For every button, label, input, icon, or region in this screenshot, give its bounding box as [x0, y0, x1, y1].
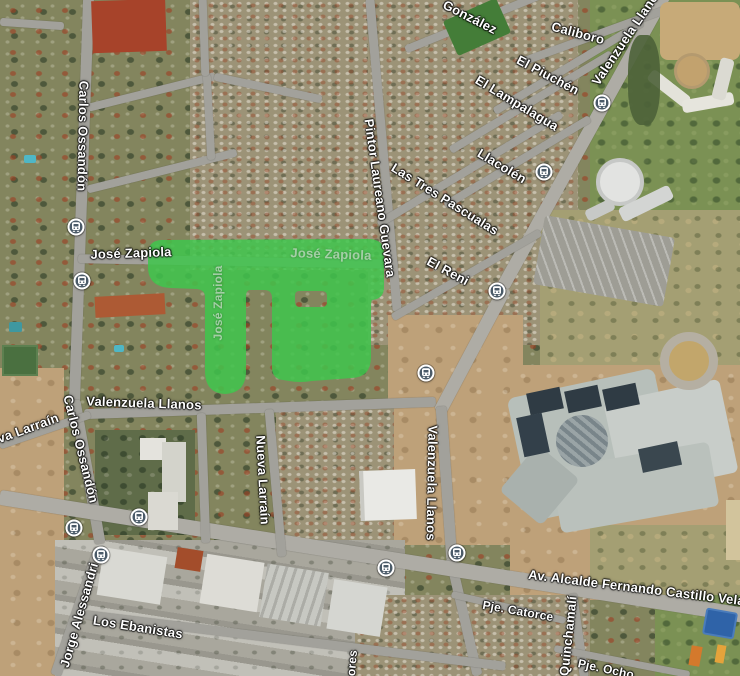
bus-stop-icon[interactable] — [74, 273, 91, 290]
bus-stop-icon[interactable] — [93, 547, 110, 564]
bus-glyph — [77, 276, 88, 287]
bus-glyph — [452, 548, 463, 559]
bus-stop-icon[interactable] — [66, 520, 83, 537]
bus-glyph — [381, 563, 392, 574]
highlighted-region[interactable] — [0, 0, 740, 676]
bus-glyph — [597, 98, 608, 109]
bus-stop-icon[interactable] — [536, 164, 553, 181]
bus-glyph — [421, 368, 432, 379]
bus-glyph — [71, 222, 82, 233]
satellite-map[interactable]: GonzálezCaliboroValenzuela LlanosEl Piuc… — [0, 0, 740, 676]
bus-stop-icon[interactable] — [378, 560, 395, 577]
highlight-polygon[interactable] — [148, 239, 384, 394]
bus-stop-icon[interactable] — [489, 283, 506, 300]
bus-glyph — [96, 550, 107, 561]
bus-stop-icon[interactable] — [594, 95, 611, 112]
bus-stop-icon[interactable] — [418, 365, 435, 382]
bus-glyph — [134, 512, 145, 523]
bus-glyph — [539, 167, 550, 178]
bus-stop-icon[interactable] — [68, 219, 85, 236]
bus-stop-icon[interactable] — [131, 509, 148, 526]
bus-glyph — [69, 523, 80, 534]
bus-stop-icon[interactable] — [449, 545, 466, 562]
bus-glyph — [492, 286, 503, 297]
